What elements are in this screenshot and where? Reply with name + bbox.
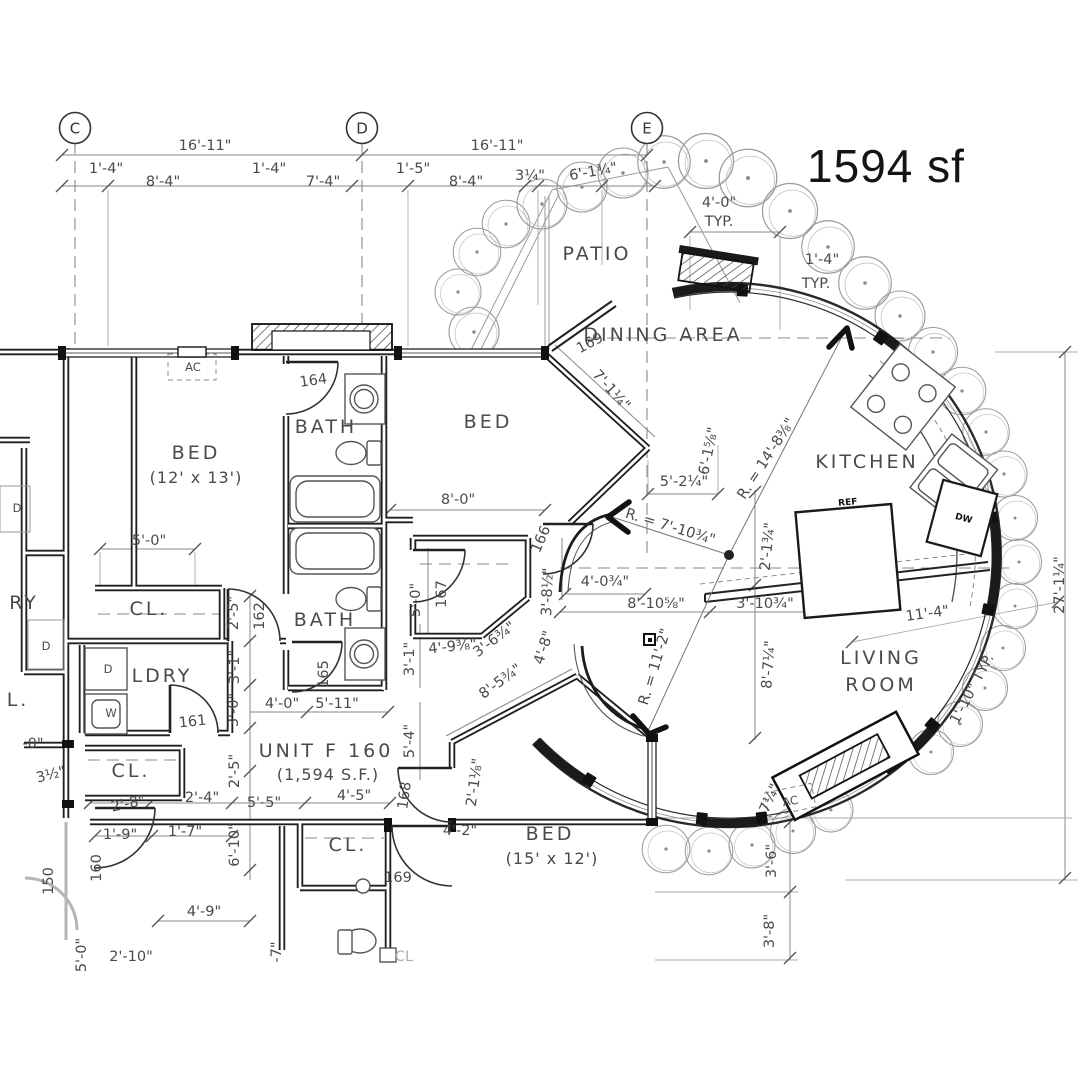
- dimension-label: 5'-0": [74, 938, 90, 972]
- door-tag: 169: [384, 870, 412, 886]
- dimension-label: 27'-1¼": [1052, 556, 1068, 614]
- floor-plan-page: PATIODINING AREAKITCHENLIVINGROOMBEDBED(…: [0, 0, 1080, 1080]
- door-tag: 166: [528, 523, 554, 555]
- room-label: BATH: [295, 416, 357, 438]
- dimension-label: 8'-4": [449, 174, 483, 190]
- dimension-label: 16'-11": [179, 138, 232, 154]
- door-tag: 167: [434, 580, 450, 608]
- appliance-label: REF: [838, 497, 858, 509]
- door-tag: 161: [178, 713, 207, 732]
- dimension-label: R. = 11'-2": [636, 627, 674, 707]
- room-label: LDRY: [132, 665, 193, 687]
- room-label: CL.: [329, 834, 368, 856]
- dimension-label: 8'-4": [146, 174, 180, 190]
- dimension-label: 2'-4": [185, 790, 219, 806]
- room-label: RY: [9, 592, 39, 614]
- dimension-label: 4'-0": [265, 696, 299, 712]
- dimension-label: 1'-4": [89, 161, 123, 177]
- grid-marker-layer: CDE: [60, 113, 663, 144]
- dimension-label: 2'-5": [226, 596, 242, 630]
- dimension-label: 5'-0": [132, 533, 166, 549]
- chimney-top: [252, 324, 392, 350]
- dimension-label: 1'-9": [103, 827, 137, 843]
- dimension-label: 4'-9⅜": [428, 637, 478, 658]
- dimension-label: 2'-10": [109, 949, 153, 965]
- dimension-label: R. = 14'-8⅜": [735, 415, 799, 502]
- dimension-label: 11'-4": [905, 603, 950, 625]
- grid-label: D: [356, 120, 368, 138]
- dimension-label: 5'-5": [247, 795, 281, 811]
- dimension-label: 7¼": [757, 781, 784, 815]
- room-label: UNIT F 160: [259, 740, 394, 762]
- dimension-label: TYP.: [704, 214, 734, 230]
- door-tag: 150: [41, 867, 57, 895]
- room-label: KITCHEN: [815, 451, 918, 473]
- dimension-label: 1'-4": [805, 252, 839, 268]
- dimension-label: 16'-11": [471, 138, 524, 154]
- annotation-layer: PATIODINING AREAKITCHENLIVINGROOMBEDBED(…: [7, 138, 1068, 972]
- door-tag: 162: [252, 602, 268, 630]
- appliance-label: D: [42, 639, 51, 653]
- dimension-label: -7": [269, 941, 285, 962]
- room-label: DINING AREA: [583, 324, 742, 346]
- room-label: PATIO: [563, 243, 632, 265]
- dimension-label: 8'-7¼": [759, 640, 778, 689]
- door-tag: 165: [316, 660, 332, 688]
- dimension-label: 3'-1": [402, 642, 418, 676]
- curved-entry-doors: [560, 514, 648, 736]
- appliance-label: W: [105, 706, 116, 720]
- room-size-label: (12' x 13'): [150, 468, 243, 487]
- dimension-label: 5'-0": [408, 583, 424, 617]
- appliance-label: D: [104, 662, 113, 676]
- dimension-label: 3'-10¾": [736, 596, 794, 612]
- appliance-label: AC: [185, 360, 201, 374]
- faded-label: CL: [395, 949, 413, 965]
- dimension-label: 3½": [35, 764, 68, 787]
- appliance-label: D: [13, 501, 22, 515]
- door-tag: 168: [395, 781, 415, 811]
- dimension-label: 3'-8": [762, 914, 778, 948]
- room-label: LIVING: [840, 647, 922, 669]
- dimension-label: 4'-5": [337, 788, 371, 804]
- grid-label: E: [642, 120, 651, 138]
- grid-label: C: [70, 120, 80, 138]
- room-label: BED: [526, 823, 575, 845]
- dimension-label: 1'-5": [396, 161, 430, 177]
- door-tag: 160: [89, 854, 105, 882]
- dimension-label: 6'-1¾": [568, 160, 618, 184]
- dimension-label: 2'-1⅛": [464, 757, 487, 807]
- room-label: CL.: [130, 598, 169, 620]
- room-label: BED: [464, 411, 513, 433]
- dimension-label: 8'-5¾": [476, 661, 525, 702]
- refrigerator: [795, 504, 900, 618]
- dimension-label: R. = 7'-10¾": [623, 506, 717, 549]
- dimension-label: 1'-7": [168, 824, 202, 840]
- room-label: BED: [172, 442, 221, 464]
- dimension-label: 8'-0": [441, 492, 475, 508]
- dimension-label: 5'-11": [315, 696, 359, 712]
- dimension-label: 3¼": [515, 168, 545, 184]
- appliance-label: AC: [781, 793, 799, 810]
- dimension-label: TYP.: [801, 276, 831, 292]
- dimension-label: 6'-10": [227, 823, 243, 867]
- dimension-label: 4'-0": [702, 195, 736, 211]
- dimension-label: 2'-5": [227, 754, 243, 788]
- room-label: ROOM: [845, 674, 917, 696]
- room-label: BATH: [294, 609, 356, 631]
- dimension-label: 3'-0": [226, 693, 242, 727]
- dimension-label: 8'-10⅝": [627, 596, 685, 612]
- room-label: L.: [7, 689, 30, 711]
- dimension-label: 3'-8½": [539, 567, 557, 616]
- dimension-label: 4'-2": [443, 823, 477, 839]
- dimension-label: 2'-1¾": [758, 522, 779, 572]
- dimension-label: 4'-8": [531, 629, 557, 667]
- dimension-label: -0": [22, 736, 43, 752]
- dimension-label: 3'-6": [764, 844, 780, 878]
- dimension-label: 4'-9": [187, 904, 221, 920]
- dimension-label: 7'-4": [306, 174, 340, 190]
- dimension-label: 7'-1¼": [589, 367, 633, 414]
- room-size-label: (15' x 12'): [506, 849, 599, 868]
- area-label: 1594 sf: [807, 140, 965, 192]
- dimension-label: 1'-4": [252, 161, 286, 177]
- floorplan-svg: PATIODINING AREAKITCHENLIVINGROOMBEDBED(…: [0, 0, 1080, 1080]
- stove: [851, 344, 955, 450]
- room-label: CL.: [112, 760, 151, 782]
- room-size-label: (1,594 S.F.): [277, 765, 379, 784]
- dimension-label: 5'-4": [402, 724, 418, 758]
- dimension-label: 3'-1": [227, 650, 243, 684]
- dimension-label: 4'-0¾": [581, 574, 629, 590]
- dimension-label: 5'-2¼": [660, 474, 708, 490]
- door-tag: 164: [299, 371, 329, 391]
